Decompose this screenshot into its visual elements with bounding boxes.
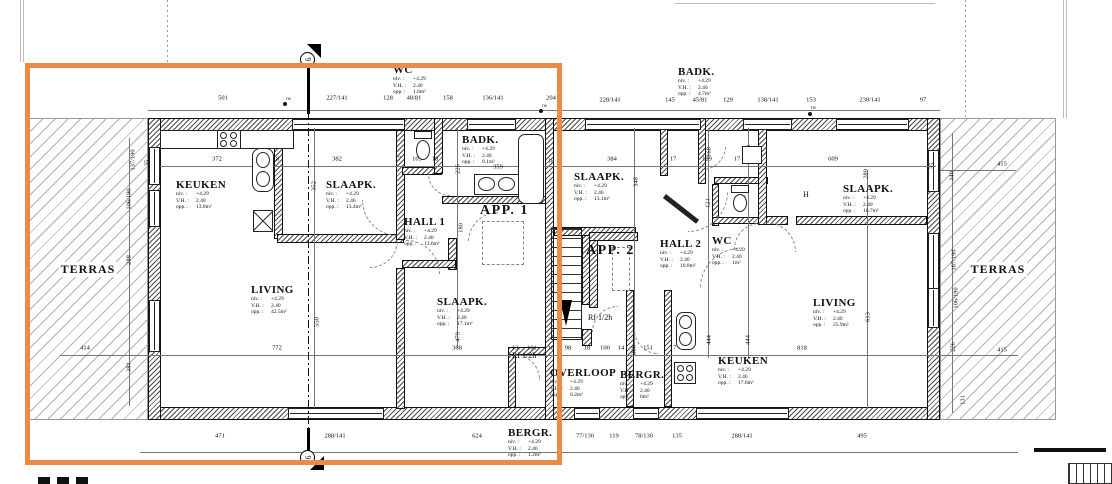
dimension-label: 129 [723, 97, 733, 104]
info-value: 25.9m² [833, 322, 849, 328]
floor-plan-canvas: TERRAS TERRAS 501227/14112848/81158136/1… [0, 0, 1112, 484]
dimension-label: 97 [920, 97, 927, 104]
adjacent-drawing-line [1034, 448, 1106, 452]
info-value: +4.29 [863, 195, 876, 201]
sink-basin-icon [679, 332, 692, 346]
dimension-label: 167/190 [951, 249, 958, 270]
selection-highlight-box [25, 63, 562, 465]
window [928, 288, 939, 328]
info-value: 2.40 [594, 190, 604, 196]
info-value: 6.2m² [570, 392, 583, 398]
room-label-bergr-a2: BERGR.niv. :+4.29V.H. :2.40opp. :6m² [620, 369, 664, 401]
dimension-label: 45/81 [693, 97, 708, 104]
dimension-line [634, 128, 635, 356]
room-title: BADK. [678, 66, 715, 78]
dimension-label: 18 [584, 345, 591, 352]
dimension-label: 17 [670, 156, 677, 163]
legend-fragment [38, 477, 50, 484]
room-title: HALL 2 [660, 238, 701, 250]
dimension-label: 135 [672, 433, 682, 440]
room-label-slaapk-a2-mid: SLAAPK.niv. :+4.29V.H. :2.40opp. :13.1m² [574, 171, 624, 203]
room-label-badk-a2: BADK.niv. :+4.29V.H. :2.40opp. :4.7m² [678, 66, 715, 98]
info-value: 2.40 [732, 254, 742, 260]
info-value: 6m² [640, 394, 649, 400]
dimension-label: 17 [670, 345, 677, 352]
dimension-label: 613 [865, 312, 872, 322]
dimension-label: 77/130 [576, 433, 594, 440]
info-key: opp. : [620, 394, 640, 401]
window [928, 233, 939, 295]
info-value: 17.6m² [738, 380, 754, 386]
info-value: 2.40 [738, 374, 748, 380]
wall [796, 216, 927, 225]
info-value: 10.8m² [680, 263, 696, 269]
room-info-line: opp. :4.7m² [678, 91, 715, 98]
dimension-label: 415 [997, 347, 1007, 354]
burner-icon [686, 374, 693, 381]
room-info-line: opp. :25.9m² [813, 322, 856, 329]
dimension-label: 100 [600, 345, 610, 352]
info-value: +4.29 [738, 367, 751, 373]
dimension-label: 444 [706, 335, 713, 345]
dimension-label: 415 [997, 161, 1007, 168]
dimension-label: 78/130 [635, 433, 653, 440]
dimension-label: 145 [665, 97, 675, 104]
room-info-line: opp. :6m² [620, 394, 664, 401]
dimension-label: 153 [806, 97, 816, 104]
dimension-label: 151 [643, 345, 653, 352]
toilet-bowl-icon [733, 194, 747, 212]
dimension-label: 289 [863, 169, 870, 179]
burner-icon [677, 374, 684, 381]
dimension-label: 168 [706, 147, 713, 157]
fire-rating-label: Rf 1/2h [588, 313, 612, 322]
info-value: +4.29 [698, 78, 711, 84]
info-value: 2.40 [833, 316, 843, 322]
info-value: +4.29 [570, 379, 583, 385]
room-title: SLAAPK. [574, 171, 624, 183]
info-key: opp. : [678, 91, 698, 98]
dimension-label: 106/190 [953, 287, 960, 308]
room-title: WC [712, 235, 745, 247]
info-value: 2.40 [640, 388, 650, 394]
dimension-label: 495 [857, 433, 867, 440]
info-value: 13.1m² [594, 196, 610, 202]
window [633, 408, 659, 419]
wall [582, 329, 592, 346]
dimension-label: 609 [828, 156, 838, 163]
dimension-label: 238/141 [859, 97, 880, 104]
dimension-label: 131 [960, 395, 967, 405]
info-key: opp. : [813, 322, 833, 329]
window [696, 408, 789, 419]
info-value: +4.29 [732, 247, 745, 253]
info-value: 2.40 [570, 386, 580, 392]
info-key: opp. : [843, 208, 863, 215]
info-key: opp. : [574, 196, 594, 203]
dimension-label: 98 [565, 345, 572, 352]
leader-dot [808, 112, 812, 116]
wall [758, 118, 767, 225]
dimension-label: 17 [734, 156, 741, 163]
room-title: LIVING [813, 297, 856, 309]
room-title: KEUKEN [718, 355, 768, 367]
dimension-label: 35 [929, 163, 936, 170]
info-value: 1m² [732, 260, 741, 266]
info-key: opp. : [660, 263, 680, 270]
dimension-label: 818 [797, 345, 807, 352]
room-info-line: opp. :17.6m² [718, 380, 768, 387]
dimension-label: 226 [950, 342, 957, 352]
info-value: 2.40 [698, 85, 708, 91]
info-value: 16.7m² [863, 208, 879, 214]
room-title: SLAAPK. [843, 183, 893, 195]
room-label-slaapk-a2-right: SLAAPK.niv. :+4.29V.H. :2.40opp. :16.7m² [843, 183, 893, 215]
burner-icon [677, 365, 684, 372]
dimension-label: 119 [609, 433, 619, 440]
dimension-label: 340 [949, 171, 956, 181]
dimension-label: 121 [705, 198, 712, 208]
room-info-line: opp. :13.1m² [574, 196, 624, 203]
info-value: +4.29 [833, 309, 846, 315]
dimension-label: 348 [633, 177, 640, 187]
room-label-keuken-a2: KEUKENniv. :+4.29V.H. :2.40opp. :17.6m² [718, 355, 768, 387]
annotation-label: rw [811, 106, 816, 111]
section-marker-label: 9 [303, 58, 312, 62]
legend-fragment [57, 477, 69, 484]
room-label-living-a2: LIVINGniv. :+4.29V.H. :2.40opp. :25.9m² [813, 297, 856, 329]
window [743, 119, 792, 130]
dimension-label: 288/141 [731, 433, 752, 440]
boiler-icon [742, 146, 762, 164]
toilet-tank-icon [731, 185, 749, 193]
window [928, 150, 939, 192]
dimension-label: 138/141 [757, 97, 778, 104]
room-label-wc-a2: WCniv. :+4.29V.H. :2.40opp. :1m² [712, 235, 745, 267]
door-swing-arc [766, 222, 796, 252]
apartment-label: APP. 2 [586, 243, 635, 259]
info-key: opp. : [712, 260, 732, 267]
adjacent-stair-fragment [1068, 463, 1112, 484]
burner-icon [686, 365, 693, 372]
room-title: BERGR. [620, 369, 664, 381]
sink-basin-icon [679, 315, 692, 329]
annotation-label: H [803, 190, 809, 199]
info-value: 2.40 [863, 202, 873, 208]
dimension-label: 444 [745, 335, 752, 345]
window [836, 119, 909, 130]
info-value: +4.29 [594, 183, 607, 189]
dimension-label: 398 [631, 345, 638, 355]
info-key: opp. : [718, 380, 738, 387]
room-info-line: opp. :10.8m² [660, 263, 701, 270]
info-value: 4.7m² [698, 91, 711, 97]
info-value: +4.29 [640, 381, 653, 387]
dimension-label: 14 [618, 345, 625, 352]
room-info-line: opp. :1m² [712, 260, 745, 267]
room-info-line: opp. :16.7m² [843, 208, 893, 215]
window [574, 408, 600, 419]
info-value: 2.40 [680, 257, 690, 263]
legend-fragment [76, 477, 88, 484]
room-label-hall-2: HALL 2niv. :+4.29V.H. :2.40opp. :10.8m² [660, 238, 701, 270]
dimension-label: 384 [607, 156, 617, 163]
window [585, 119, 701, 130]
info-value: +4.29 [680, 250, 693, 256]
dimension-label: 228/141 [599, 97, 620, 104]
